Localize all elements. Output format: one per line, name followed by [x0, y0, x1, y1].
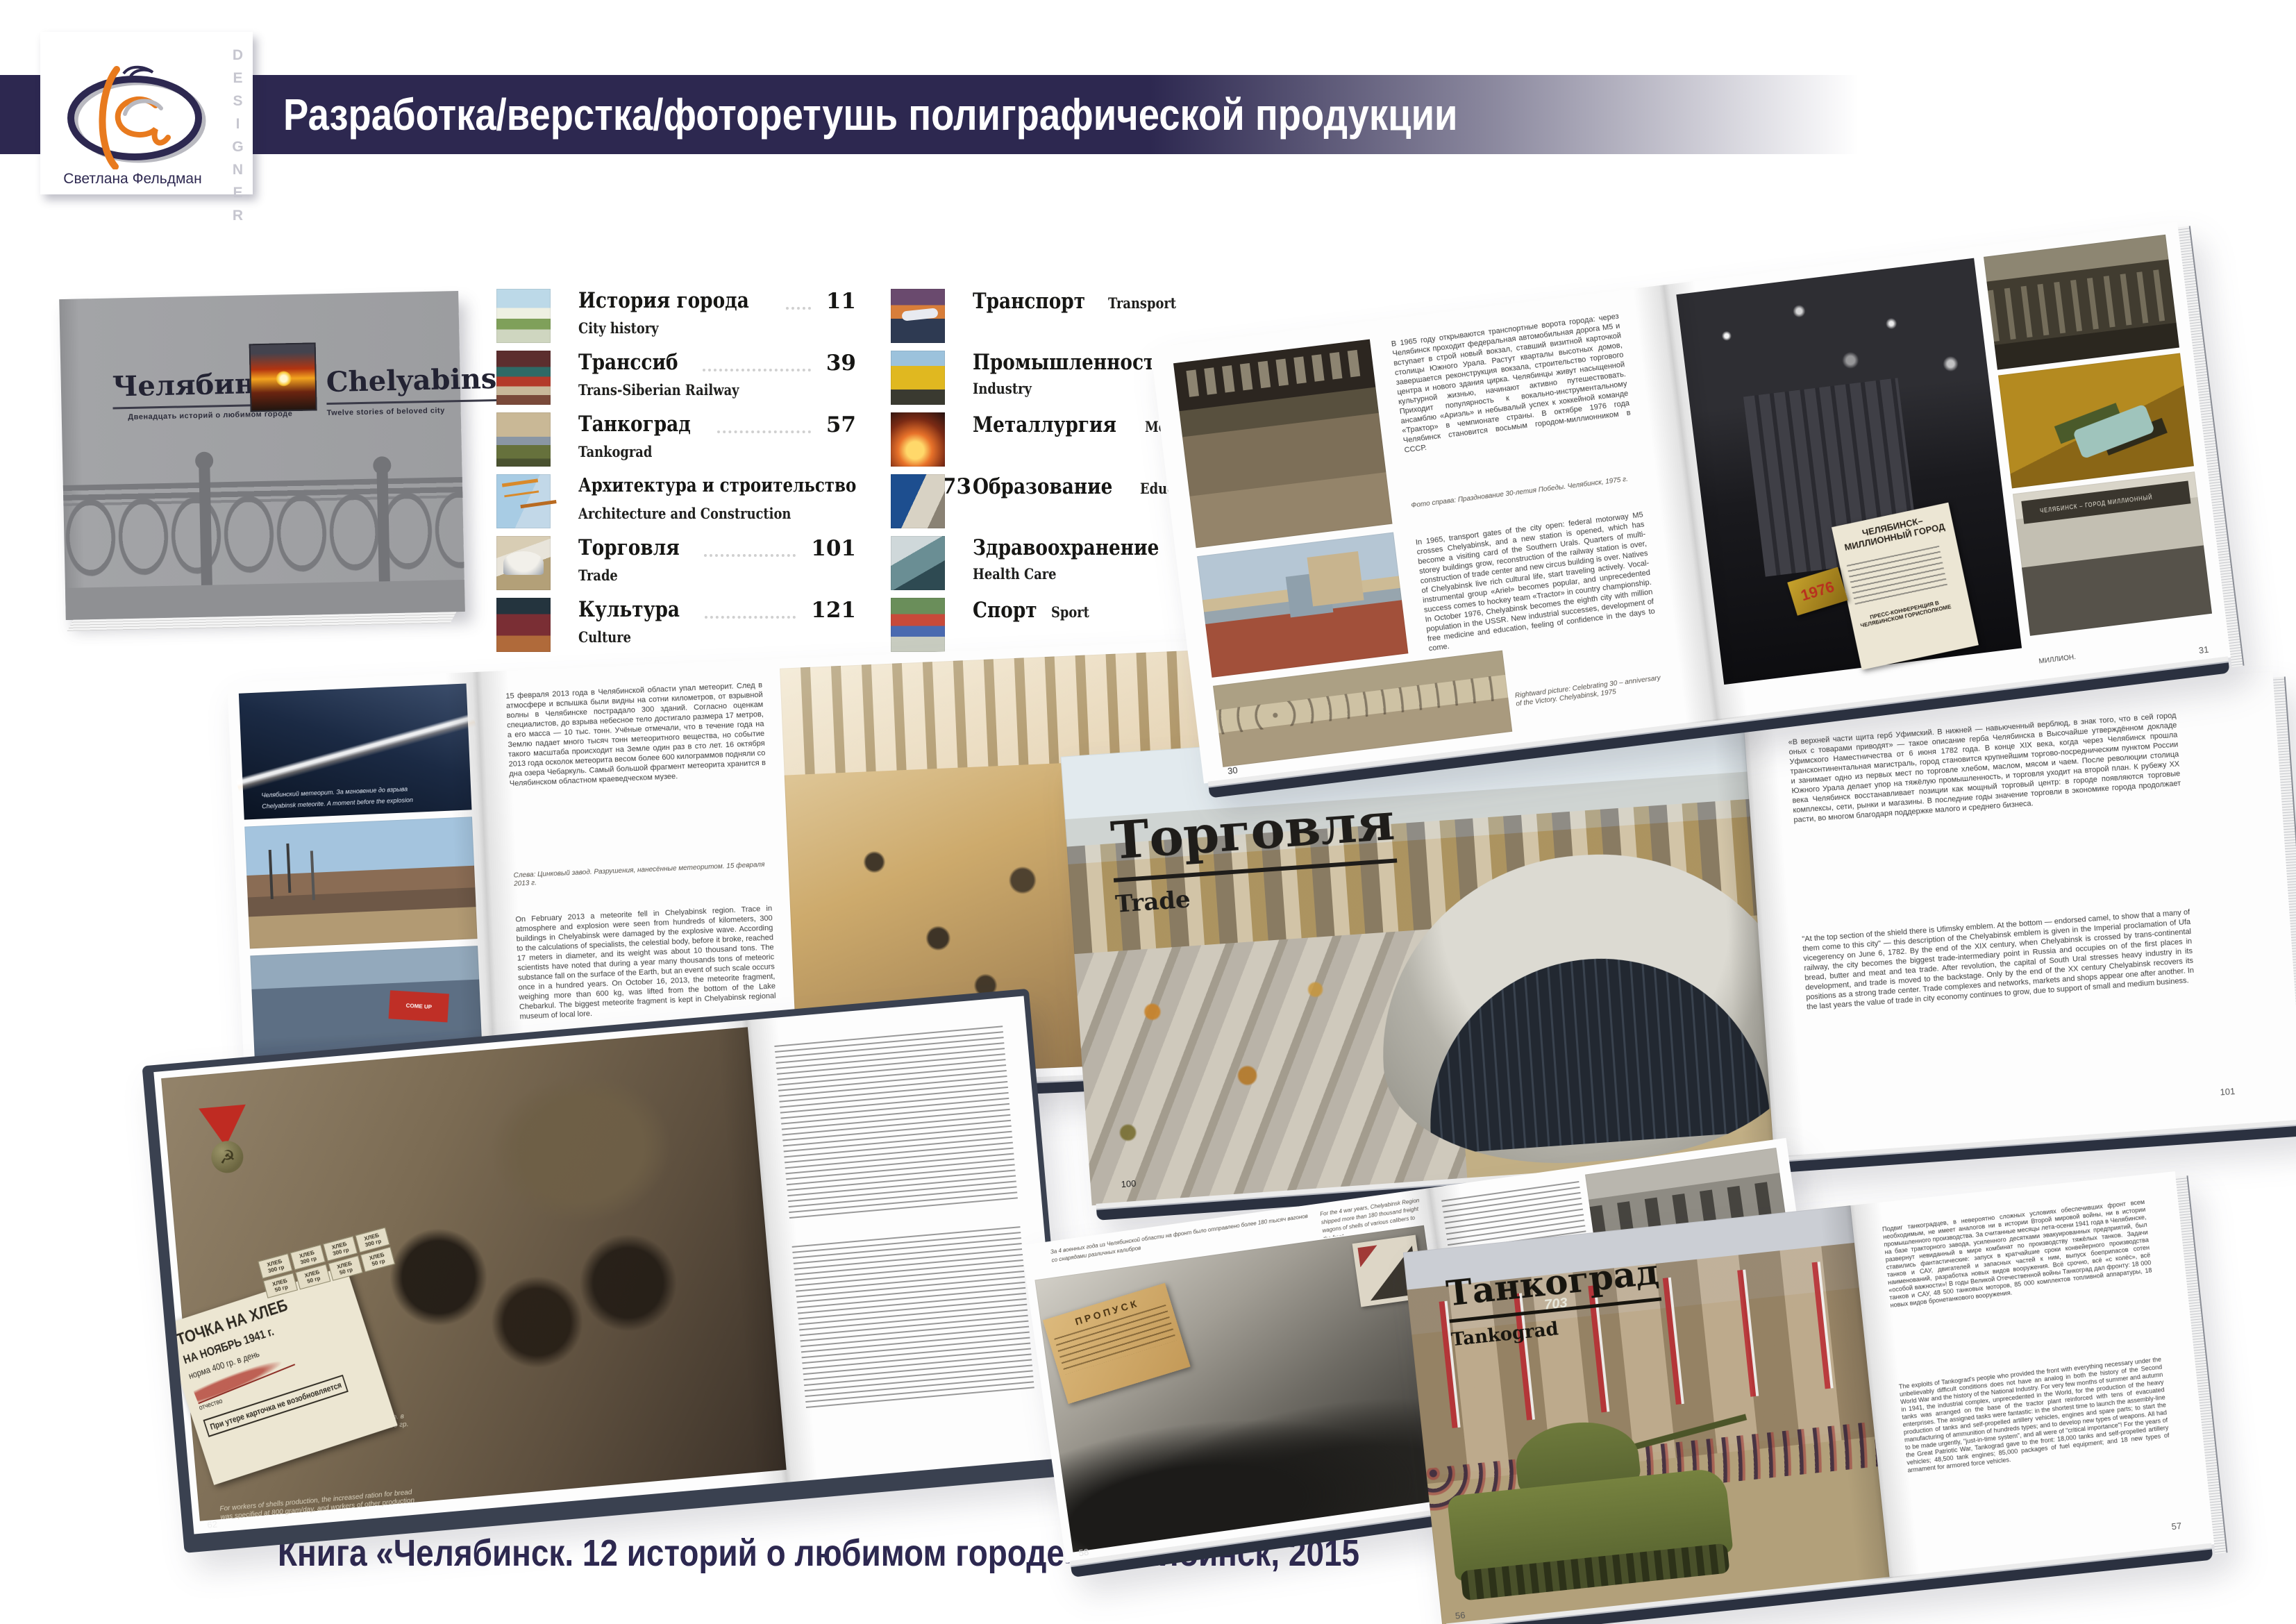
- toc-thumb-trade-image: [496, 536, 551, 590]
- photo-storefront-crowd: ЧЕЛЯБИНСК – ГОРОД МИЛЛИОННЫЙ: [2013, 471, 2212, 636]
- portfolio-page: Разработка/верстка/фоторетушь полиграфич…: [0, 0, 2296, 1624]
- toc-thumb-metallurgy-image: [891, 412, 945, 467]
- spread-tankograd-book: 703 Танкоград Tankograd 56 Подвиг танког…: [1403, 1171, 2214, 1624]
- toc-thumb-education-image: [891, 474, 945, 528]
- designer-name: Светлана Фельдман: [40, 171, 225, 187]
- body-text-ru: Подвиг танкоградцев, в невероятно сложны…: [1882, 1198, 2160, 1373]
- toc-entry-trade: Торговля101 Trade: [496, 536, 856, 590]
- body-text-ru: 15 февраля 2013 года в Челябинской облас…: [505, 680, 769, 864]
- toc-entry-transsib: Транссиб39 Trans-Siberian Railway: [496, 351, 856, 405]
- toc-entry-tankograd: Танкоград57 Tankograd: [496, 412, 856, 467]
- page-title: Разработка/верстка/фоторетушь полиграфич…: [283, 75, 1665, 154]
- dot-leader: [704, 536, 796, 557]
- body-text-en-lines: [792, 1226, 1035, 1412]
- spread-workers-book: ☭ ТОЧКА НА ХЛЕБ НА НОЯБРЬ 1941 г. норма …: [153, 996, 1064, 1534]
- page-number: 31: [2198, 644, 2209, 656]
- toc-title: Металлургия: [973, 413, 1116, 437]
- toc-title: Архитектура и строительство: [578, 474, 856, 498]
- book-page-right: [747, 996, 1064, 1482]
- toc-subtitle: City history: [578, 319, 659, 337]
- photo-skiers-group: [1984, 235, 2179, 370]
- photo-aerial-car: [1998, 353, 2194, 488]
- photo-aerial-market: [1061, 709, 1775, 1205]
- toc-title: Транссиб: [578, 351, 678, 374]
- toc-title: Культура: [578, 598, 680, 621]
- clipping-text-lines: [1847, 546, 1948, 608]
- toc-thumb-city-history-image: [496, 289, 551, 343]
- toc-thumb-architecture-image: [496, 474, 551, 528]
- page-number: 62: [207, 1519, 218, 1530]
- toc-thumb-tankograd-image: [496, 412, 551, 467]
- toc-subtitle: Industry: [973, 380, 1032, 397]
- toc-title: Образование: [973, 475, 1112, 499]
- toc-subtitle: Tankograd: [578, 443, 652, 460]
- toc-entry-architecture: Архитектура и строительство73 Architectu…: [496, 474, 856, 528]
- page-number: 101: [2220, 1086, 2236, 1097]
- toc-title: История города: [578, 289, 749, 312]
- toc-thumb-transsib-image: [496, 351, 551, 405]
- toc-title: Транспорт: [973, 290, 1085, 313]
- come-up-flag: COME UP: [388, 991, 449, 1023]
- toc-subtitle: Sport: [1051, 603, 1089, 621]
- toc-page-number: 121: [811, 598, 856, 623]
- book-page-left: 703 Танкоград Tankograd 56: [1403, 1205, 1890, 1624]
- toc-title: Промышленность: [973, 351, 1167, 374]
- toc-subtitle: Architecture and Construction: [578, 505, 791, 522]
- book-page-right: Подвиг танкоградцев, в невероятно сложны…: [1850, 1171, 2214, 1578]
- toc-entry-culture: Культура121 Culture: [496, 598, 856, 652]
- toc-entry-transport: Транспорт Transport: [891, 289, 1250, 343]
- cover-title-en: Chelyabinsk: [326, 362, 516, 405]
- book-page-left: Торговля Trade 100: [1061, 709, 1775, 1205]
- toc-page-number: 101: [811, 536, 856, 561]
- toc-subtitle: Trade: [578, 567, 618, 584]
- tank-is3: [1441, 1408, 1735, 1601]
- toc-page-number: 11: [826, 289, 856, 314]
- dolphin-icon: [124, 67, 153, 76]
- photo-meteor-trail: Челябинский метеорит. За мгновение до вз…: [239, 683, 472, 819]
- toc-title: Здравоохранение: [973, 536, 1159, 560]
- page-number: 30: [1227, 764, 1238, 776]
- book-cover: Челябинск Двенадцать историй о любимом г…: [59, 291, 465, 620]
- toc-right-column: Транспорт Transport Промышленность Indus…: [891, 289, 1189, 664]
- book-page-right: ЧЕЛЯБИНСК – ГОРОД МИЛЛИОННЫЙ ЧЕЛЯБИНСК– …: [1664, 222, 2230, 721]
- page-number: 57: [2171, 1521, 2182, 1532]
- photo-demonstration: [1173, 340, 1393, 549]
- toc-thumb-sport-image: [891, 598, 945, 652]
- dot-leader: [705, 598, 796, 619]
- cover-sunset-image: [249, 342, 317, 412]
- toc-left-column: История города11 City history Транссиб39…: [496, 289, 885, 664]
- photo-zinc-plant-ruins: [244, 817, 477, 948]
- designer-vertical-label: DESIGNER: [229, 47, 246, 231]
- page-number: 100: [1121, 1178, 1137, 1189]
- book-page-left: За 4 военных года из Челябинской области…: [1021, 1189, 1472, 1564]
- toc-title: Торговля: [578, 536, 680, 560]
- toc-page-number: 39: [826, 351, 856, 376]
- toc-entry-city-history: История города11 City history: [496, 289, 856, 343]
- storefront-sign: ЧЕЛЯБИНСК – ГОРОД МИЛЛИОННЫЙ: [2021, 481, 2191, 524]
- toc-subtitle: Trans-Siberian Railway: [578, 381, 739, 399]
- page-number: 56: [1455, 1609, 1466, 1621]
- million-caption: МИЛЛИОН.: [2038, 653, 2077, 665]
- sf-monogram-logo: [57, 65, 217, 169]
- cover-subtitle-en: Twelve stories of beloved city: [327, 405, 517, 417]
- page-number: 58: [1078, 1547, 1089, 1559]
- body-text-en: The exploits of Tankograd's people who p…: [1898, 1356, 2177, 1542]
- toc-page-number: 57: [826, 412, 856, 437]
- sun-icon: [276, 371, 291, 386]
- book-page-left: ☭ ТОЧКА НА ХЛЕБ НА НОЯБРЬ 1941 г. норма …: [153, 1020, 787, 1534]
- toc-thumb-industry-image: [891, 351, 945, 405]
- body-text-en: In 1965, transport gates of the city ope…: [1415, 510, 1662, 697]
- medal-icon: ☭: [199, 1105, 252, 1181]
- book-page-left: В 1965 году открываются транспортные вор…: [1150, 285, 1717, 783]
- cover-fence-graphic: [63, 477, 464, 591]
- toc-thumb-transport-image: [891, 289, 945, 343]
- header-bar: Разработка/верстка/фоторетушь полиграфич…: [0, 75, 1916, 154]
- toc-thumb-culture-image: [496, 598, 551, 652]
- logo-card: DESIGNER Светлана Фельдман: [40, 32, 253, 194]
- body-text-ru: «В верхней части щита герб Уфимский. В н…: [1788, 711, 2188, 915]
- fence-post: [199, 464, 212, 588]
- caption-ru: Слева: Цинковый завод. Разрушения, нанес…: [513, 861, 771, 901]
- bottom-caption: Книга «Челябинск. 12 историй о любимом г…: [278, 1532, 1550, 1575]
- body-text-en: "At the top section of the shield there …: [1802, 907, 2201, 1098]
- dot-leader: [703, 351, 811, 371]
- fence-post: [376, 469, 389, 584]
- dot-leader: [786, 289, 811, 310]
- body-text-ru: В 1965 году открываются транспортные вор…: [1391, 312, 1637, 497]
- toc-subtitle: Health Care: [973, 565, 1057, 583]
- dot-leader: [717, 412, 811, 433]
- toc-thumb-healthcare-image: [891, 536, 945, 590]
- toc-subtitle: Transport: [1108, 294, 1176, 312]
- toc-title: Танкоград: [578, 412, 691, 436]
- toc-title: Спорт: [973, 598, 1037, 622]
- book-page-right: «В верхней части щита герб Уфимский. В н…: [1743, 672, 2296, 1158]
- body-text-ru-lines: [774, 1026, 1018, 1223]
- toc-subtitle: Culture: [578, 628, 631, 646]
- photo-trolleybus-street: [1197, 532, 1408, 677]
